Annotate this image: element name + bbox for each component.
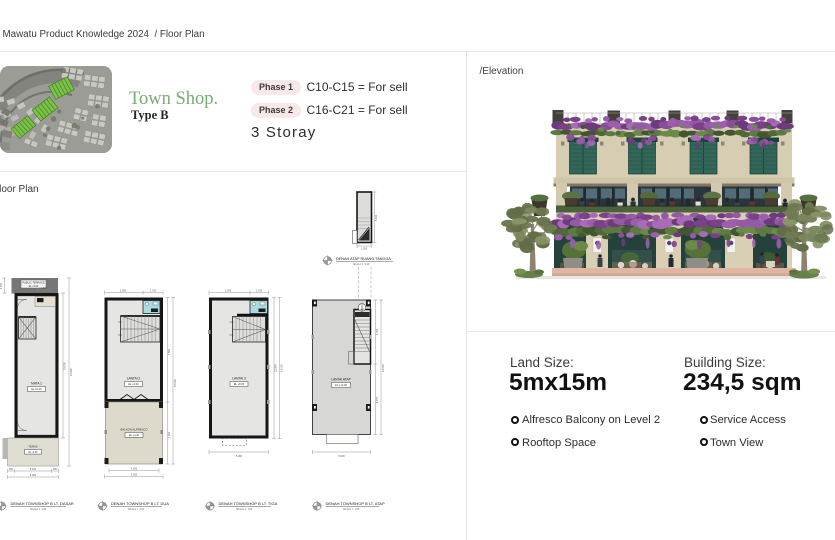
svg-text:5.000: 5.000 [338, 455, 345, 458]
svg-text:15.000: 15.000 [174, 379, 177, 387]
svg-text:DENAH TOWNSHOP B LT. DASAR: DENAH TOWNSHOP B LT. DASAR [11, 501, 74, 506]
svg-text:TERAS: TERAS [28, 445, 37, 449]
svg-text:450: 450 [9, 468, 14, 471]
svg-text:SKALA 1 : 100: SKALA 1 : 100 [128, 508, 145, 511]
svg-text:EL +3.00: EL +3.00 [29, 285, 39, 288]
svg-text:EL +8.00: EL +8.00 [234, 382, 245, 386]
svg-text:DENAH TOWNSHOP B LT. ATAP: DENAH TOWNSHOP B LT. ATAP [326, 501, 385, 506]
svg-text:15.000: 15.000 [64, 362, 67, 370]
svg-text:13.000: 13.000 [382, 364, 385, 372]
svg-text:DENAH ATAP RUANG TANGGA: DENAH ATAP RUANG TANGGA [336, 257, 391, 261]
svg-text:BALKON ALFRESCO: BALKON ALFRESCO [120, 428, 148, 432]
svg-text:5.100: 5.100 [375, 214, 378, 221]
svg-text:450: 450 [53, 468, 58, 471]
svg-text:4.200: 4.200 [131, 468, 138, 471]
svg-text:EL -0.05: EL -0.05 [29, 451, 39, 454]
svg-text:SKALA 1 : 100: SKALA 1 : 100 [236, 508, 253, 511]
svg-text:DENAH TOWNSHOP B LT. TIGA: DENAH TOWNSHOP B LT. TIGA [219, 501, 278, 506]
svg-text:EL ±0.00: EL ±0.00 [31, 387, 42, 391]
svg-text:15.800: 15.800 [70, 368, 73, 376]
svg-text:DENAH TOWNSHOP B LT. DUA: DENAH TOWNSHOP B LT. DUA [111, 501, 169, 506]
svg-text:5.000: 5.000 [131, 474, 138, 477]
svg-text:4.700: 4.700 [376, 328, 379, 335]
svg-text:EL +4.00: EL +4.00 [128, 382, 139, 386]
svg-text:EL +12.00: EL +12.00 [335, 383, 347, 387]
svg-text:MATA 1: MATA 1 [31, 382, 42, 386]
svg-text:2.000: 2.000 [0, 282, 3, 289]
svg-text:1.500: 1.500 [41, 287, 48, 290]
svg-text:SKALA 1 : 100: SKALA 1 : 100 [353, 263, 370, 266]
svg-text:LANTAI 3: LANTAI 3 [232, 377, 246, 381]
svg-text:7.000: 7.000 [168, 431, 171, 438]
svg-text:7.800: 7.800 [168, 348, 171, 355]
svg-text:3.200: 3.200 [120, 289, 127, 292]
svg-text:3.300: 3.300 [225, 289, 232, 292]
svg-text:LANTAI ATAP: LANTAI ATAP [331, 378, 350, 382]
svg-text:PUBLIC TERRACE: PUBLIC TERRACE [22, 281, 45, 285]
svg-text:12.800: 12.800 [275, 364, 278, 372]
svg-text:1.700: 1.700 [256, 289, 263, 292]
svg-text:4.970: 4.970 [376, 396, 379, 403]
svg-text:LANTAI 2: LANTAI 2 [127, 377, 141, 381]
svg-text:EL +4.00: EL +4.00 [129, 434, 140, 437]
svg-text:1.700: 1.700 [150, 289, 157, 292]
svg-text:SKALA 1 : 100: SKALA 1 : 100 [343, 508, 360, 511]
svg-text:1.500: 1.500 [361, 248, 368, 251]
svg-text:SKALA 1 : 100: SKALA 1 : 100 [30, 508, 47, 511]
svg-text:5.100: 5.100 [30, 468, 37, 471]
svg-text:13.000: 13.000 [280, 364, 283, 372]
svg-text:6.000: 6.000 [30, 474, 37, 477]
svg-text:5.000: 5.000 [236, 455, 243, 458]
